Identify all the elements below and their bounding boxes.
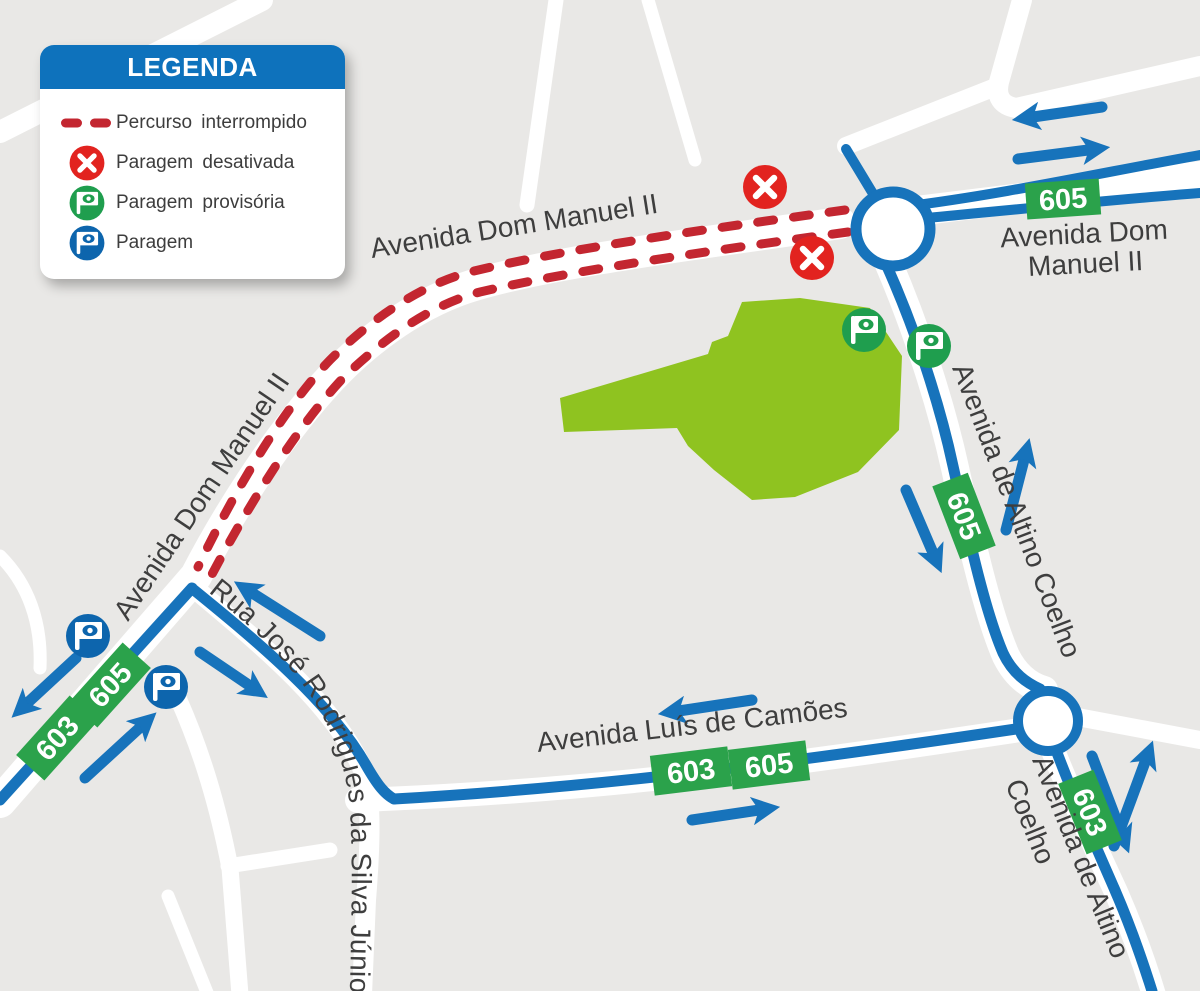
- temporary-stop-icon: [58, 184, 116, 222]
- roundabout-top-right: [856, 192, 930, 266]
- badge-603-camoes-label: 603: [665, 753, 717, 791]
- legend-title: LEGENDA: [40, 45, 345, 89]
- temporary-stop-icon-1: [842, 308, 886, 352]
- regular-stop-icon-1: [66, 614, 110, 658]
- legend-item-label: Percurso interrompido: [116, 112, 307, 134]
- temporary-stop-icon-2: [907, 324, 951, 368]
- badge-605-east: 605: [1025, 178, 1101, 219]
- disabled-stop-icon-1: [743, 165, 787, 209]
- regular-stop-icon-2: [144, 665, 188, 709]
- disabled-stop-icon: [58, 144, 116, 182]
- legend-item-label: Paragem: [116, 232, 193, 254]
- legend-item-temporary-stop: Paragem provisória: [58, 183, 335, 223]
- badge-605-east-label: 605: [1038, 182, 1089, 217]
- detour-map: 605 605 605 603 603 605 603 Avenida Dom …: [0, 0, 1200, 991]
- legend-item-label: Paragem desativada: [116, 152, 294, 174]
- regular-stop-icon: [58, 224, 116, 262]
- label-dom-manuel-right-2: Manuel II: [1027, 245, 1144, 282]
- legend-body: Percurso interrompido Paragem desativada…: [40, 89, 345, 279]
- disabled-stop-icon-2: [790, 236, 834, 280]
- legend-panel: LEGENDA Percurso interrompido Paragem de…: [40, 45, 345, 279]
- legend-item-label: Paragem provisória: [116, 192, 285, 214]
- red-dashed-line-icon: [58, 117, 116, 129]
- legend-item-interrupted-route: Percurso interrompido: [58, 103, 335, 143]
- legend-item-regular-stop: Paragem: [58, 223, 335, 263]
- badge-605-camoes-label: 605: [743, 747, 795, 785]
- legend-item-disabled-stop: Paragem desativada: [58, 143, 335, 183]
- roundabout-bottom-right: [1018, 691, 1078, 751]
